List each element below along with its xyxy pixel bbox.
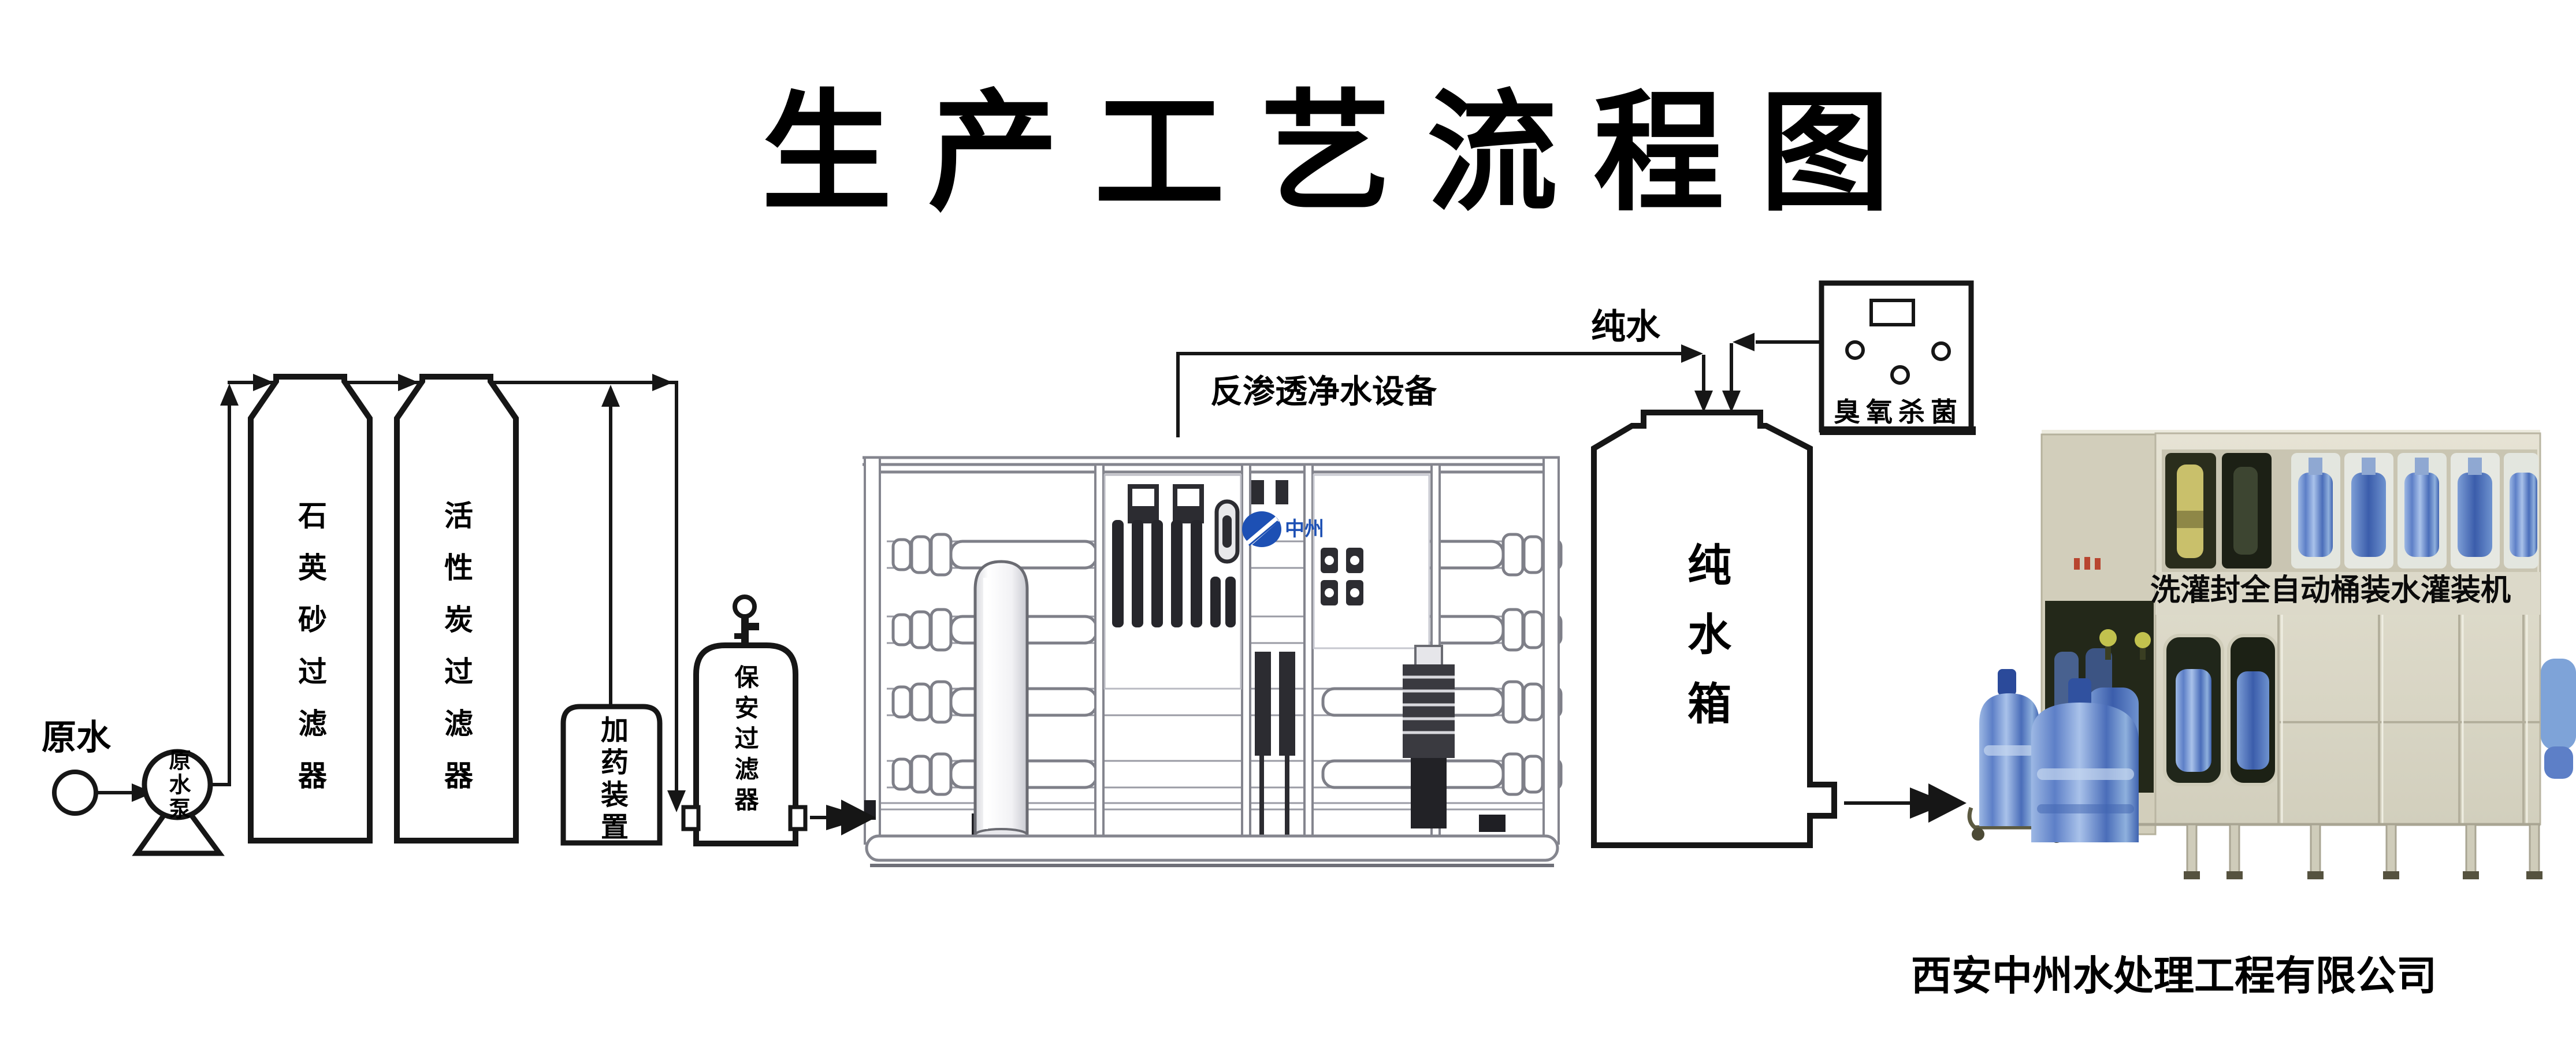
zhongzhou-logo-icon — [1242, 511, 1281, 547]
raw-water-label: 原水 — [42, 720, 111, 755]
arrow-down-icon — [1694, 391, 1713, 413]
arrow-down-icon — [1722, 391, 1741, 413]
pure-water-label: 纯水 — [1591, 310, 1660, 344]
company-name: 西安中州水处理工程有限公司 — [1911, 956, 2437, 996]
ro-pump — [1403, 646, 1455, 828]
ro-equipment-label: 反渗透净水设备 — [1210, 376, 1437, 408]
ro-cylinder — [972, 562, 1028, 841]
raw-water-source-node — [54, 772, 96, 813]
ozone-display-window — [1871, 300, 1913, 325]
arrow-right-icon — [652, 374, 673, 391]
ro-machine-drawing — [863, 458, 1561, 865]
ro-top-rail — [863, 458, 1560, 472]
filling-machine-banner: 洗灌封全自动桶装水灌装机 — [2150, 575, 2511, 605]
activated-carbon-filter-label: 活性炭过滤器 — [442, 500, 471, 812]
panel-handle — [1217, 501, 1237, 562]
arrow-left-icon — [1733, 333, 1754, 351]
pure-water-tank-label: 纯水箱 — [1683, 542, 1727, 750]
quartz-sand-filter-label: 石英砂过滤器 — [296, 500, 325, 812]
dosing-device-label: 加药装置 — [597, 715, 625, 845]
zhongzhou-logo-text: 中州 — [1285, 519, 1324, 539]
big-arrow-right-icon — [1910, 783, 1967, 823]
ro-right-panel — [1242, 475, 1429, 648]
arrow-up-icon — [601, 385, 620, 407]
arrow-right-icon — [1681, 344, 1703, 363]
side-panel-marks — [2074, 557, 2101, 570]
ro-control-panel — [1105, 475, 1241, 689]
process-flow-page: 生产工艺流程图 原水 原水泵 石英砂过滤器 活性炭过滤器 加药装置 保安过滤器 … — [0, 0, 2576, 1059]
ozone-sterilizer-label: 臭氧杀菌 — [1834, 399, 1963, 425]
page-title: 生产工艺流程图 — [726, 88, 1841, 218]
raw-water-pump-label: 原水泵 — [166, 749, 188, 822]
filling-machine-photo — [1969, 430, 2576, 879]
arrow-up-icon — [220, 384, 239, 406]
machine-upper-windows — [2162, 449, 2538, 572]
cartridge-filter-label: 保安过滤器 — [733, 664, 757, 818]
machine-legs — [2184, 824, 2542, 879]
valve-icon — [734, 597, 759, 646]
bottle-at-outfeed — [2541, 659, 2576, 750]
